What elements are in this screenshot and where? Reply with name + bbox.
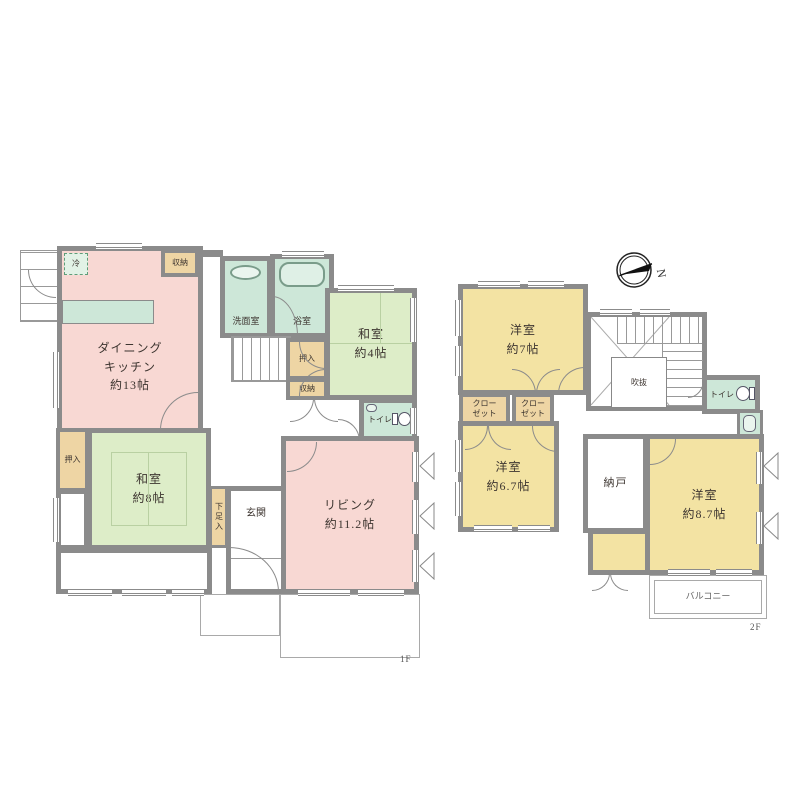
window-mark	[756, 452, 763, 484]
room-western-7-label: 洋室 約7帖	[506, 321, 539, 358]
closet-storage-dk-label: 収納	[172, 258, 188, 268]
closet-b-label: クロー ゼット	[521, 399, 545, 419]
compass-north-label: N	[654, 268, 669, 279]
window-mark	[600, 309, 632, 316]
window-mark	[412, 500, 419, 534]
room-western-67-label: 洋室 約6.7帖	[486, 458, 530, 495]
shutter-mark	[419, 552, 435, 580]
balcony-label: バルコニー	[686, 591, 731, 603]
balcony-inner-outline: バルコニー	[654, 580, 762, 614]
door-arc	[338, 419, 360, 441]
window-mark	[358, 589, 404, 596]
window-mark	[455, 346, 462, 376]
window-mark	[53, 498, 60, 542]
refrigerator-box: 冷	[64, 253, 88, 275]
window-mark	[412, 550, 419, 582]
toilet-icon	[749, 387, 755, 400]
window-mark	[122, 589, 166, 596]
toilet-icon	[736, 386, 750, 401]
window-mark	[53, 352, 60, 408]
stair-treads-right	[662, 343, 703, 406]
room-washitsu-4: 和室 約4帖	[325, 288, 417, 400]
closet-oshiire-left-label: 押入	[65, 455, 81, 465]
sink-icon	[230, 265, 261, 280]
closet-storage-dk: 収納	[161, 249, 199, 277]
tatami-grid	[111, 452, 187, 526]
basin-icon	[743, 415, 756, 432]
door-arc	[290, 398, 314, 422]
window-mark	[172, 589, 204, 596]
atrium-label: 吹抜	[631, 378, 647, 388]
window-mark	[298, 589, 350, 596]
room-entrance-label: 玄関	[246, 507, 266, 520]
window-mark	[518, 525, 550, 532]
staircase-1f	[231, 336, 291, 382]
door-arc	[592, 573, 610, 591]
window-mark	[455, 440, 462, 472]
window-mark	[474, 525, 512, 532]
tatami-line	[380, 293, 381, 344]
room-toilet-1f-label: トイレ	[368, 415, 392, 425]
balcony-outline: バルコニー	[649, 575, 767, 619]
shutter-mark	[419, 452, 435, 480]
wall-stub-hall-top	[198, 250, 223, 257]
compass-icon: N	[615, 247, 677, 295]
window-mark	[68, 589, 112, 596]
room-living-label: リビング 約11.2帖	[324, 496, 376, 533]
window-mark	[455, 300, 462, 336]
room-dining-kitchen-label: ダイニング キッチン 約13帖	[97, 339, 162, 395]
floor-label-2f: 2F	[750, 622, 762, 632]
room-nando: 納戸	[583, 434, 648, 533]
window-mark	[338, 285, 394, 292]
room-nando-label: 納戸	[604, 475, 628, 492]
tatami-line	[148, 452, 149, 526]
corner-sink-icon	[366, 404, 377, 412]
window-mark	[455, 482, 462, 516]
closet-oshiire-left: 押入	[56, 428, 89, 492]
room-western-87-label: 洋室 約8.7帖	[682, 486, 726, 523]
terrace-outline	[280, 594, 420, 658]
window-mark	[528, 281, 564, 288]
shutter-mark	[763, 512, 779, 540]
door-arc	[610, 573, 628, 591]
veranda-corridor-left	[56, 489, 89, 550]
window-mark	[756, 512, 763, 544]
bathtub-icon	[279, 262, 325, 287]
window-mark	[96, 243, 142, 250]
room-western-87-ext	[588, 529, 650, 575]
stair-treads-top	[617, 317, 702, 344]
room-washroom-label: 洗面室	[232, 316, 259, 328]
atrium-box: 吹抜	[611, 357, 667, 408]
door-arc	[314, 398, 338, 422]
window-mark	[410, 408, 417, 434]
room-toilet-2f-label: トイレ	[710, 390, 734, 400]
shutter-mark	[763, 452, 779, 480]
window-mark	[410, 298, 417, 342]
window-mark	[716, 569, 752, 576]
window-mark	[640, 309, 670, 316]
veranda-bottom	[56, 548, 212, 594]
window-mark	[668, 569, 710, 576]
refrigerator-label: 冷	[72, 259, 80, 269]
window-mark	[412, 452, 419, 482]
floor-plan-canvas: ダイニング キッチン 約13帖 冷 収納 洗面室 浴室 押入 収納 和室 約4帖	[0, 0, 800, 800]
window-mark	[478, 281, 520, 288]
shutter-mark	[419, 502, 435, 530]
room-washitsu-4-label: 和室 約4帖	[354, 325, 387, 362]
closet-a-label: クロー ゼット	[473, 399, 497, 419]
tatami-line	[330, 343, 412, 344]
shoe-cabinet-label: 下足入	[214, 502, 224, 532]
kitchen-counter	[62, 300, 154, 324]
porch-outline	[200, 594, 280, 636]
floor-label-1f: 1F	[400, 654, 412, 664]
window-mark	[282, 251, 324, 258]
